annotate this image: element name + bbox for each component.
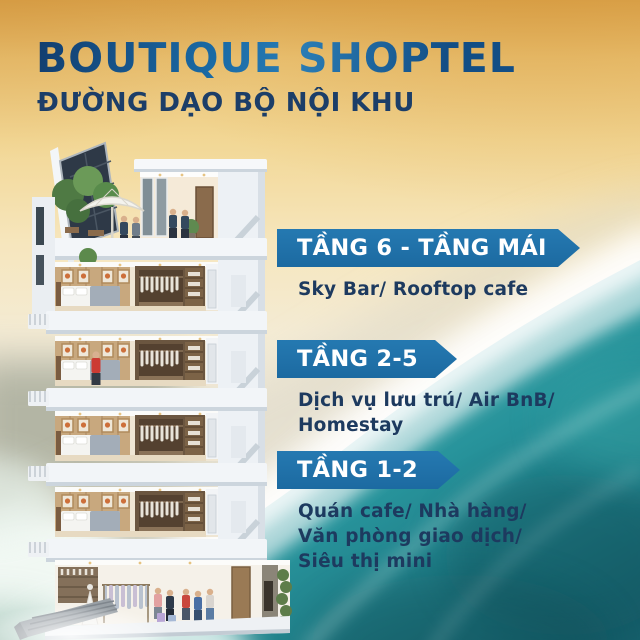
floor-info-2-5: TẦNG 2-5 Dịch vụ lưu trú/ Air BnB/ Homes… — [277, 340, 555, 438]
shop-floor — [14, 560, 292, 640]
building-cross-section-illustration — [10, 135, 300, 640]
floor-banner-2-5: TẦNG 2-5 — [277, 340, 457, 378]
floor-banner-6-roof: TẦNG 6 - TẦNG MÁI — [277, 229, 580, 267]
floor-description-line: Siêu thị mini — [298, 549, 527, 574]
floor-description: Sky Bar/ Rooftop cafe — [298, 277, 580, 302]
floor-description-line: Sky Bar/ Rooftop cafe — [298, 277, 580, 302]
floor-description-line: Dịch vụ lưu trú/ Air BnB/ — [298, 388, 555, 413]
balcony-person — [92, 351, 101, 385]
header: BOUTIQUE SHOPTEL ĐƯỜNG DẠO BỘ NỘI KHU — [36, 36, 516, 118]
floor-description-line: Văn phòng giao dịch/ — [298, 524, 527, 549]
page-title: BOUTIQUE SHOPTEL — [36, 36, 516, 80]
floor-info-1-2: TẦNG 1-2 Quán cafe/ Nhà hàng/ Văn phòng … — [277, 451, 527, 574]
floor-description-line: Homestay — [298, 413, 555, 438]
floor-description: Dịch vụ lưu trú/ Air BnB/ Homestay — [298, 388, 555, 438]
floor-banner-label: TẦNG 1-2 — [297, 457, 418, 483]
floor-banner-label: TẦNG 6 - TẦNG MÁI — [297, 235, 547, 261]
floor-banner-label: TẦNG 2-5 — [297, 346, 418, 372]
floor-banner-1-2: TẦNG 1-2 — [277, 451, 460, 489]
floor-info-6-roof: TẦNG 6 - TẦNG MÁI Sky Bar/ Rooftop cafe — [277, 229, 580, 302]
floor-description-line: Quán cafe/ Nhà hàng/ — [298, 499, 527, 524]
page-subtitle: ĐƯỜNG DẠO BỘ NỘI KHU — [37, 89, 516, 118]
floor-description: Quán cafe/ Nhà hàng/ Văn phòng giao dịch… — [298, 499, 527, 574]
poster: BOUTIQUE SHOPTEL ĐƯỜNG DẠO BỘ NỘI KHU TẦ… — [0, 0, 640, 640]
